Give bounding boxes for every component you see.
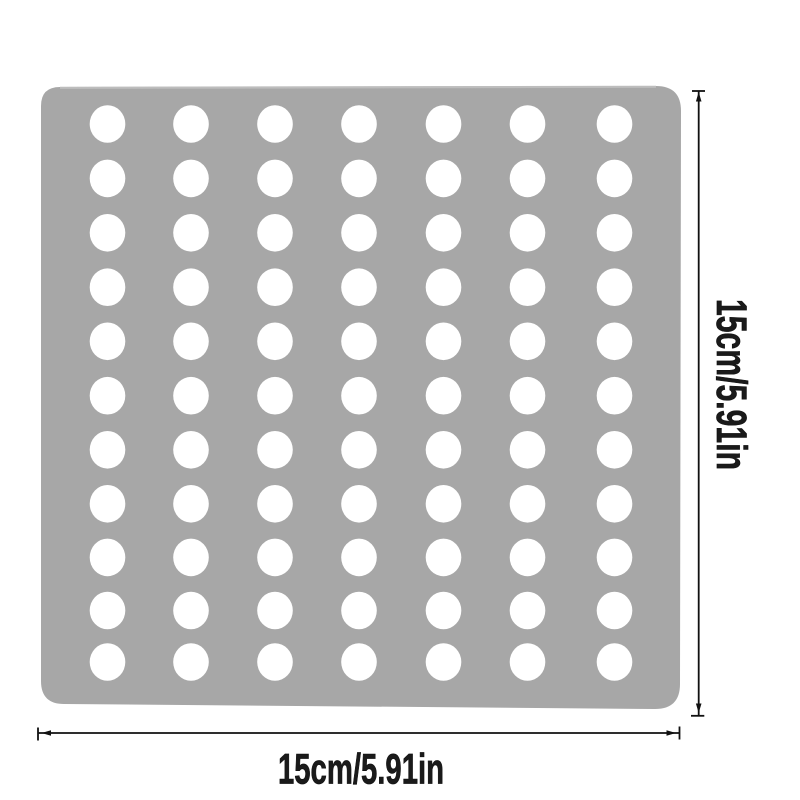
svg-text:15cm/5.91in: 15cm/5.91in [707, 299, 755, 470]
svg-text:15cm/5.91in: 15cm/5.91in [278, 746, 444, 794]
